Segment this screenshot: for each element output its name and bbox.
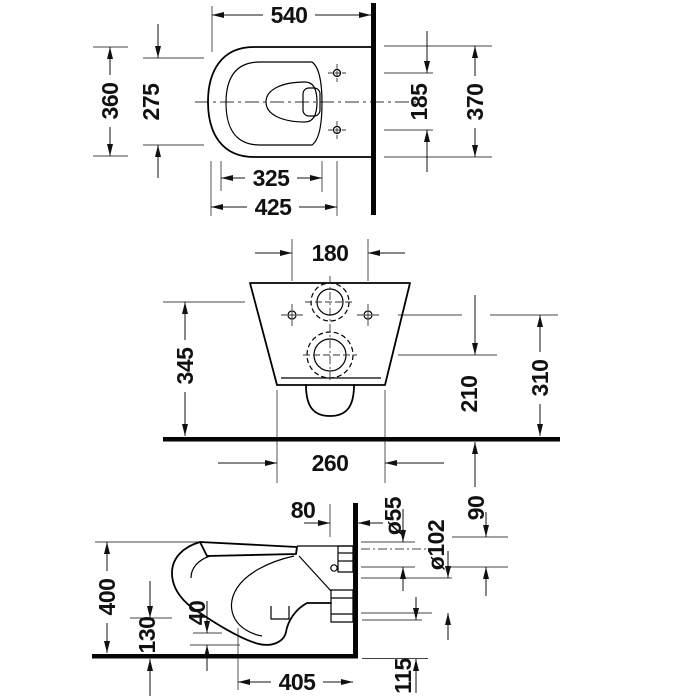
dim-rear-fixing-holes-span: 180: [312, 240, 349, 266]
dim-side-90: 90: [463, 496, 489, 521]
wall-line-side-view: [353, 503, 358, 658]
top-view: 540 360 275 325 425 185 370: [93, 2, 492, 220]
dim-side-130: 130: [134, 617, 160, 654]
rear-view-extension-lines: [163, 239, 558, 483]
inlet-connector: [338, 546, 353, 572]
bowl-profile-outer: [172, 542, 331, 645]
bowl-cavity: [231, 556, 294, 636]
dim-side-overall-height: 400: [94, 579, 120, 616]
dim-side-outlet-diameter: ø102: [423, 520, 449, 570]
seat-ring-outline: [226, 62, 322, 145]
side-view: 400 130 40 405 115 80 ø55 ø102 90: [92, 496, 508, 696]
mounting-notch: [271, 606, 289, 619]
dim-top-overall-depth: 540: [271, 2, 308, 28]
dim-top-seat-width: 275: [138, 83, 164, 121]
dim-top-wall-width: 370: [462, 84, 488, 121]
dim-top-fixing-span: 185: [406, 83, 432, 121]
wall-line-top-view: [371, 3, 376, 215]
dim-rear-side-fixing-height: 310: [527, 360, 553, 397]
seat-slab: [200, 542, 297, 556]
outlet-connector: [331, 590, 353, 622]
dim-rear-outlet-height: 210: [456, 376, 482, 413]
technical-drawing-page: 540 360 275 325 425 185 370: [0, 0, 700, 700]
outlet-foot-rear: [306, 385, 354, 416]
dim-rear-base-width: 260: [312, 450, 349, 476]
dim-side-overall-depth: 405: [279, 669, 317, 695]
floor-line-side-view: [92, 654, 358, 659]
dim-side-115: 115: [390, 657, 416, 693]
dim-rear-inlet-height: 345: [172, 347, 198, 385]
dim-side-inlet-diameter: ø55: [380, 496, 406, 535]
dim-top-325: 325: [253, 165, 291, 191]
dim-top-overall-width: 360: [97, 83, 123, 120]
bowl-front-inner: [191, 556, 210, 578]
rear-view: 180 345 210 310 260: [163, 239, 560, 487]
dim-top-425: 425: [255, 194, 293, 220]
seat-hinge-point: [331, 565, 337, 571]
rear-view-dimension-lines: [185, 253, 540, 487]
dim-side-80: 80: [291, 497, 316, 523]
floor-line-rear-view: [163, 437, 560, 442]
outlet-hole-rear: [303, 332, 357, 378]
toilet-profile-side: [172, 542, 353, 645]
fixing-point-markers-top: [328, 64, 346, 139]
dim-side-40: 40: [184, 601, 210, 626]
toilet-dimension-drawing: 540 360 275 325 425 185 370: [0, 0, 700, 700]
